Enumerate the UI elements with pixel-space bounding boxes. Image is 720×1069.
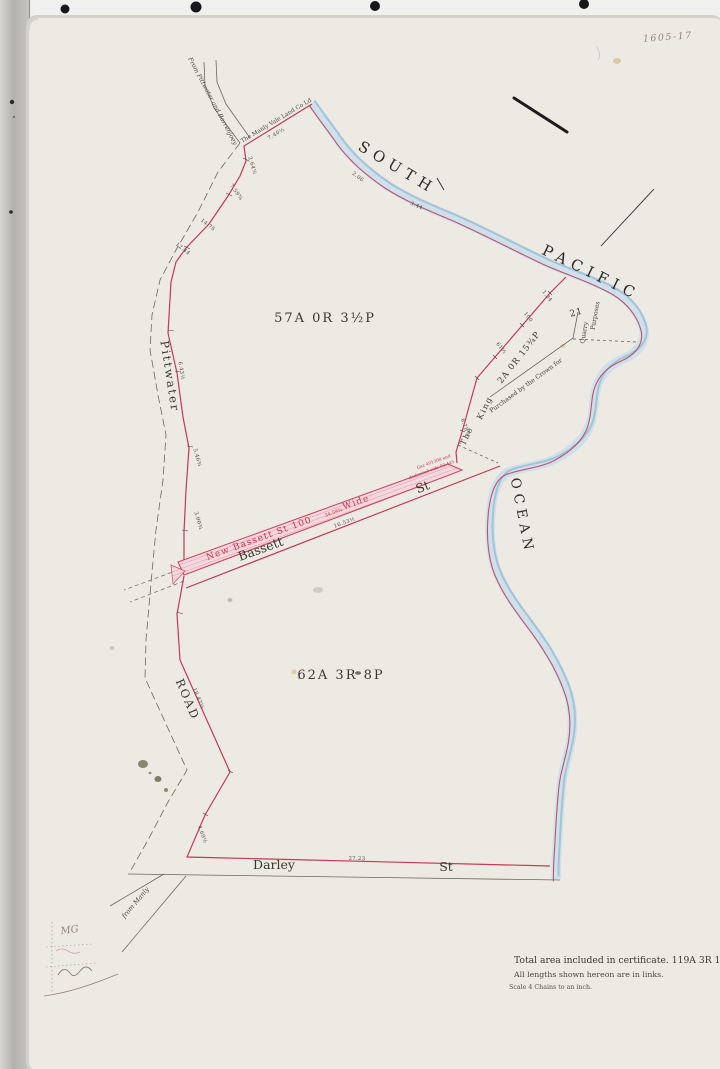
note-total-area: Total area included in certificate. 119A…	[514, 955, 720, 966]
meas-darley: 27.23	[349, 856, 366, 862]
punch-hole	[61, 5, 70, 14]
street-name-darley: Darley	[253, 857, 296, 872]
note-lengths: All lengths shown hereon are in links.	[513, 970, 664, 979]
punch-hole	[370, 1, 380, 11]
note-scale: Scale 4 Chains to an inch.	[509, 984, 592, 991]
street-name-darley-st: St	[439, 859, 453, 874]
binding-edge	[0, 0, 30, 1069]
parcel-57a-area: 57A 0R 3½P	[274, 311, 376, 326]
punch-hole	[191, 2, 202, 13]
survey-map-scan: SOUTH PACIFIC OCEAN 57A 0R 3½P 62A 3R 8P…	[0, 0, 720, 1069]
map-canvas: SOUTH PACIFIC OCEAN 57A 0R 3½P 62A 3R 8P…	[0, 0, 720, 1069]
parcel-62a-area: 62A 3R 8P	[297, 668, 384, 683]
